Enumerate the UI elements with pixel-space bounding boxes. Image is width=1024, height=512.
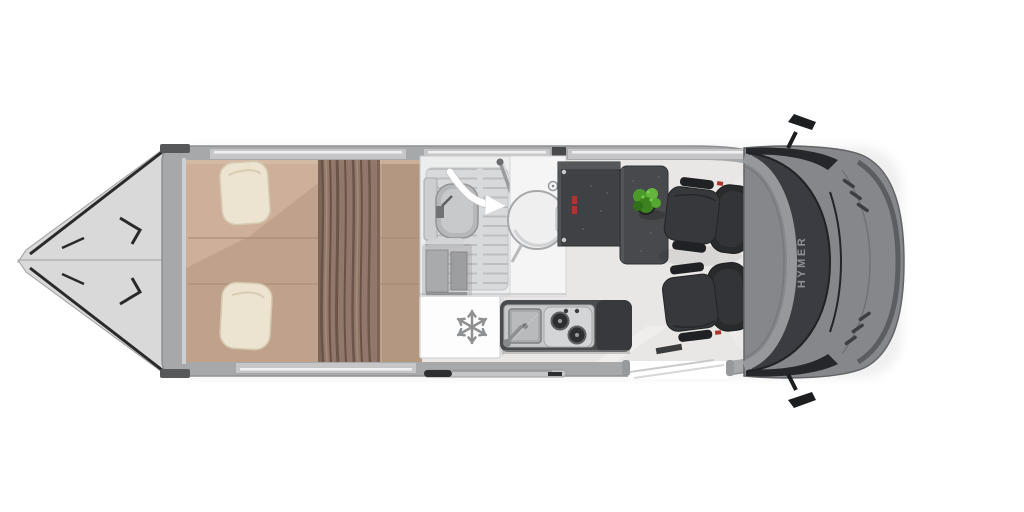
stove-knob (564, 309, 568, 313)
rear-corner-cap-bottom (160, 369, 190, 378)
stove-burner-icon (569, 327, 586, 344)
wing-mirror-top (788, 114, 816, 148)
seat-tag (717, 181, 723, 186)
sliding-door-rail (424, 370, 566, 377)
sideboard-handle (572, 206, 577, 214)
sink (509, 309, 541, 343)
rear-door-open-top (18, 147, 166, 262)
rear-wall-highlight (182, 158, 186, 364)
wall-end-cap (726, 360, 734, 376)
sideboard (558, 162, 620, 246)
washbasin (508, 156, 566, 296)
windshield-brand-text: HYMER (796, 236, 808, 288)
rear-corner-cap-top (160, 144, 190, 153)
seat-tag (715, 330, 721, 335)
wall-end-cap (622, 360, 630, 376)
pillow-top (219, 160, 271, 225)
rear-door-open-bottom (18, 260, 166, 375)
sideboard-handle (572, 196, 577, 204)
fridge (420, 296, 504, 358)
double-bed (186, 160, 422, 362)
floorplan-canvas: HYMER (0, 0, 1024, 512)
wardrobe-cabinet (422, 244, 472, 298)
stove-knob (575, 309, 579, 313)
divider-curtain (318, 160, 380, 362)
wing-mirror-bottom (788, 374, 816, 408)
stove-burner-icon (552, 313, 569, 330)
campervan-floorplan: HYMER (0, 0, 1024, 512)
two-burner-stove (544, 307, 592, 347)
pillow-bottom (219, 282, 272, 351)
kitchen-counter (500, 300, 632, 354)
toilet-hinge (436, 206, 444, 218)
